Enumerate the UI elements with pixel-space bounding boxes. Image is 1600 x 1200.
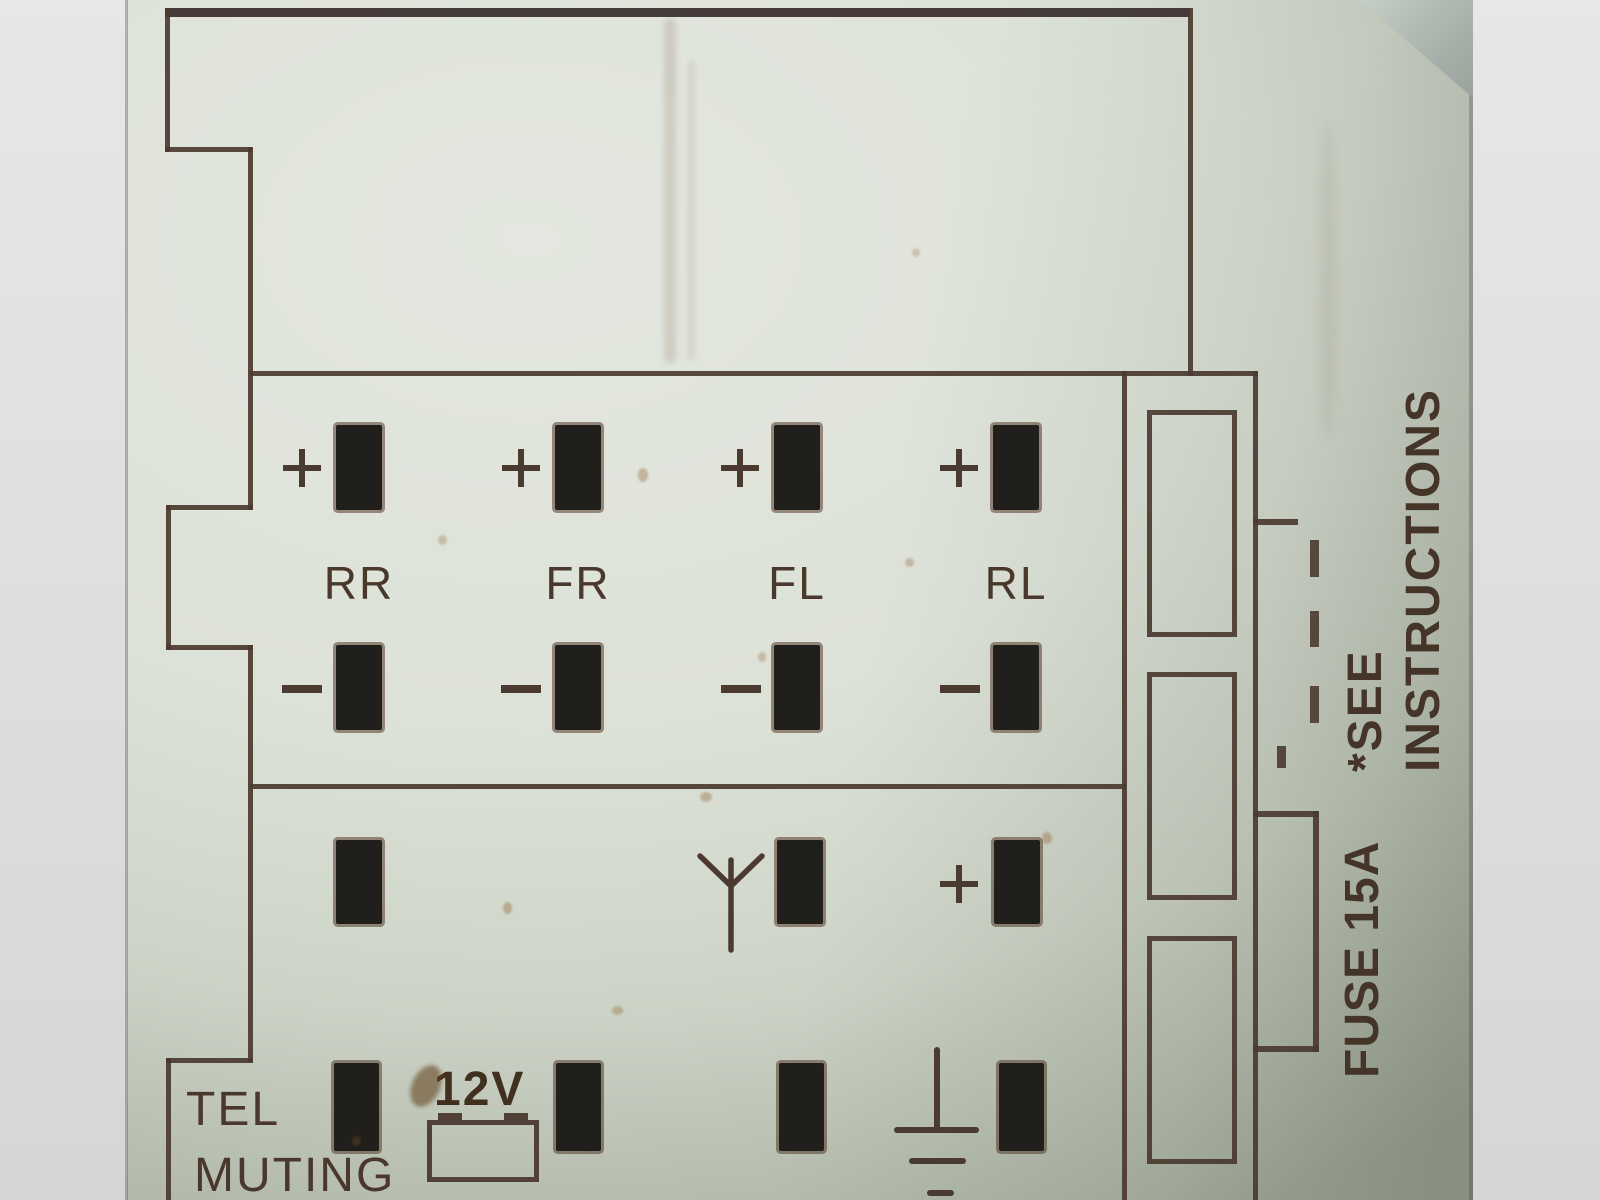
pin-tel-muting [334, 1063, 379, 1151]
channel-label-rl: RL [946, 556, 1086, 610]
pin-rr-plus [336, 425, 382, 510]
backdrop-right-strip [1473, 0, 1600, 1200]
pin-fr-plus [555, 425, 601, 510]
left-border-v3 [248, 645, 253, 1062]
tel-label-line1: TEL [186, 1082, 280, 1137]
left-border-v2 [248, 147, 253, 510]
battery-terminal [438, 1113, 462, 1122]
pin-rl-minus [993, 645, 1039, 730]
pin-fl-plus [774, 425, 820, 510]
pin-fl-minus [774, 645, 820, 730]
pin-bottom-fr [556, 1063, 601, 1151]
column-slot-1 [1147, 410, 1237, 637]
tel-label-line2: MUTING [194, 1148, 395, 1200]
column-right-line [1253, 371, 1258, 1200]
minus-icon [282, 685, 322, 693]
notch-left-line [166, 505, 171, 650]
photo-of-wiring-label: RR FR FL RL TEL MUTING 12V *SEE INSTRUCT… [0, 0, 1600, 1200]
dash-2 [1310, 611, 1319, 647]
fuse-bracket-right [1313, 811, 1319, 1052]
ground-icon [890, 1045, 985, 1200]
channel-label-fr: FR [508, 556, 648, 610]
plus-icon [940, 865, 978, 903]
pin-rl-plus [993, 425, 1039, 510]
minus-icon [501, 685, 541, 693]
dash-4 [1277, 746, 1286, 768]
top-box-right-line [1188, 8, 1193, 376]
notch-bottom-line [166, 645, 253, 650]
plus-icon [502, 449, 540, 487]
label-left-edge [125, 0, 128, 1200]
see-note-line1: *SEE [1337, 372, 1395, 772]
fuse-rating-label: FUSE 15A [1336, 798, 1390, 1078]
dash-3 [1310, 686, 1319, 723]
plus-icon [940, 449, 978, 487]
pin-antenna [777, 840, 823, 924]
channel-label-rr: RR [289, 556, 429, 610]
pin-fr-minus [555, 645, 601, 730]
plus-icon [721, 449, 759, 487]
pin-battery-plus [994, 840, 1040, 924]
pin-rr-minus [336, 645, 382, 730]
pin-tel-top [336, 840, 382, 924]
label-right-edge [1469, 0, 1473, 1200]
left-step1-line [165, 147, 252, 152]
notch-top-line [166, 505, 253, 510]
left-step2-line [166, 1058, 253, 1063]
column-top-line [1122, 371, 1258, 376]
minus-icon [721, 685, 761, 693]
channel-label-fl: FL [727, 556, 867, 610]
battery-terminal [504, 1113, 528, 1122]
pin-bottom-fl [779, 1063, 824, 1151]
top-box-top-line [165, 8, 1190, 17]
column-slot-2 [1147, 672, 1237, 900]
fuse-bracket-top [1253, 811, 1319, 817]
divider-middle-bottom [250, 784, 1126, 789]
left-border-v4 [166, 1058, 171, 1200]
top-box-left-line [165, 8, 170, 152]
plus-icon [283, 449, 321, 487]
see-instructions-note: *SEE INSTRUCTIONS [1337, 372, 1453, 772]
supply-voltage-label: 12V [434, 1062, 525, 1117]
backdrop-left-strip [0, 0, 127, 1200]
antenna-icon [686, 848, 778, 956]
column-left-line [1122, 371, 1127, 1200]
dash-1 [1310, 540, 1319, 577]
fuse-bracket-bottom [1253, 1046, 1319, 1052]
see-note-line2: INSTRUCTIONS [1395, 372, 1453, 772]
pin-ground [999, 1063, 1044, 1151]
minus-icon [940, 685, 980, 693]
battery-icon [427, 1120, 539, 1182]
dashed-wire-tick [1253, 519, 1298, 525]
column-slot-3 [1147, 936, 1237, 1164]
divider-top-middle [250, 371, 1126, 376]
